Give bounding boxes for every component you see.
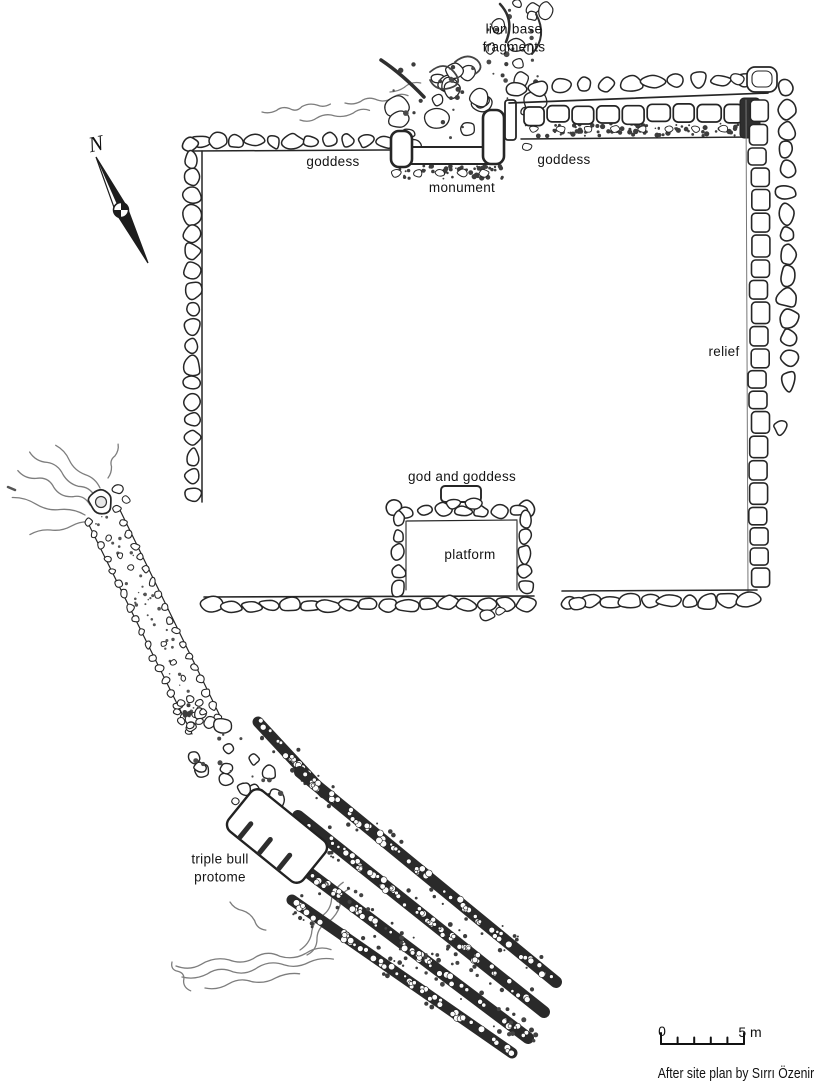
site-plan-drawing [0, 0, 826, 1090]
scale-end-label: 5 m [738, 1024, 761, 1040]
label-goddess-left: goddess [306, 153, 359, 171]
label-relief: relief [708, 343, 739, 361]
scale-zero-label: 0 [658, 1023, 666, 1039]
attribution-text: After site plan by Sırrı Özenir [658, 1066, 814, 1082]
label-platform: platform [444, 546, 495, 564]
label-goddess-right: goddess [537, 151, 590, 169]
label-triple-bull-protome: triple bull protome [191, 850, 248, 885]
label-monument: monument [429, 179, 495, 197]
label-lion-base-fragments: lion base fragments [483, 20, 546, 55]
site-plan-page: lion base fragments goddess monument god… [0, 0, 826, 1090]
label-god-and-goddess: god and goddess [408, 468, 516, 486]
